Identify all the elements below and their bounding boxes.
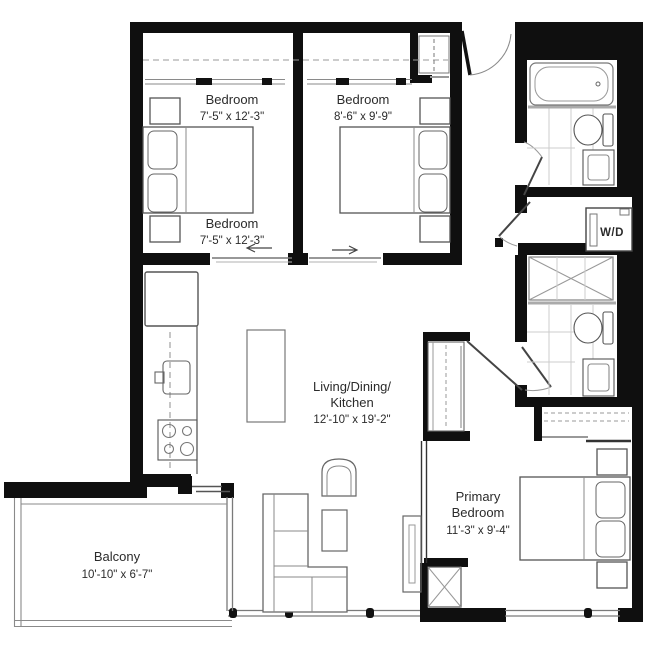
laundry-label: W/D: [600, 227, 624, 239]
living-west-window: [227, 497, 233, 611]
nightstand: [420, 98, 450, 124]
toilet-icon: [574, 114, 613, 146]
balcony-dims: 10'-10" x 6'-7": [82, 569, 153, 581]
bathroom2: [527, 257, 616, 396]
pillow-icon: [596, 482, 625, 518]
entry-door-arc: [470, 34, 511, 75]
living-label-2: Kitchen: [330, 395, 373, 410]
primary-partition-wall: [422, 441, 427, 563]
balcony-label: Balcony: [94, 549, 141, 564]
fridge-icon: [145, 272, 198, 326]
sink-icon: [155, 361, 190, 394]
living-label-1: Living/Dining/: [313, 379, 391, 394]
stove-icon: [158, 420, 197, 460]
bedroom2-dims: 8'-6" x 9'-9": [334, 111, 392, 123]
bedroom1-label: Bedroom: [206, 92, 259, 107]
pillow-icon: [596, 521, 625, 557]
armchair: [322, 459, 356, 496]
entry-door-leaf: [462, 31, 470, 75]
bedroom1-dims: 7'-5" x 12'-3": [200, 111, 264, 123]
pillow-icon: [419, 174, 447, 212]
pillow-icon: [419, 131, 447, 169]
nightstand: [597, 449, 627, 475]
floor-plan: W/D: [0, 0, 672, 672]
nightstand: [150, 98, 180, 124]
bedroom2-closet: [419, 36, 449, 77]
kitchen-island: [247, 330, 285, 422]
primary-closet: [542, 413, 631, 441]
shaft-column: [428, 567, 461, 607]
nightstand: [597, 562, 627, 588]
kitchen: [145, 272, 198, 474]
primary-door-leaf: [467, 341, 522, 390]
bath2-door-leaf: [522, 347, 551, 387]
pillow-icon: [148, 174, 177, 212]
sink-icon: [583, 359, 614, 396]
floor-plan-svg: W/D: [0, 0, 672, 672]
bath2-door-arc: [525, 387, 551, 391]
washer-dryer: W/D: [586, 208, 632, 251]
primary-label-1: Primary: [456, 489, 501, 504]
primary-dims: 11'-3" x 9'-4": [446, 525, 509, 537]
shower-icon: [529, 257, 613, 300]
hall-closet: [428, 342, 464, 431]
sofa: [263, 494, 347, 612]
laundry-door-leaf: [499, 202, 530, 236]
primary-label-2: Bedroom: [452, 505, 505, 520]
pillow-icon: [148, 131, 177, 169]
living-dims: 12'-10" x 19'-2": [313, 414, 390, 426]
bedroom2-label: Bedroom: [337, 92, 390, 107]
toilet-icon: [574, 312, 613, 344]
primary-bed: [520, 449, 630, 588]
primary-south-window: [505, 611, 620, 617]
nightstand: [150, 216, 180, 242]
nightstand: [420, 216, 450, 242]
bedroom1-label-2: Bedroom: [206, 216, 259, 231]
bathroom1: [527, 63, 616, 185]
bath1-door-arc: [524, 142, 542, 157]
bedroom1-dims-2: 7'-5" x 12'-3": [200, 235, 264, 247]
tv-stand: [403, 516, 421, 592]
sink-icon: [583, 150, 614, 185]
coffee-table: [322, 510, 347, 551]
bathtub-icon: [530, 63, 613, 105]
